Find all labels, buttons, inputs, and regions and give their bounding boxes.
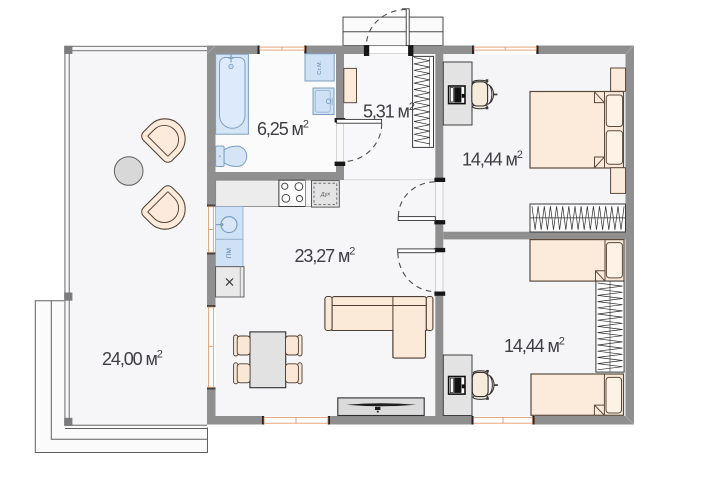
svg-text:23,27 м2: 23,27 м2 (295, 246, 356, 267)
svg-text:14,44 м2: 14,44 м2 (462, 149, 523, 170)
svg-text:6,25 м2: 6,25 м2 (257, 119, 309, 140)
svg-text:5,31 м2: 5,31 м2 (363, 101, 415, 122)
svg-text:14,44 м2: 14,44 м2 (504, 336, 565, 357)
svg-text:Дух: Дух (320, 191, 331, 198)
svg-text:Ст.М.: Ст.М. (317, 60, 323, 74)
svg-text:ПМ: ПМ (226, 248, 233, 259)
svg-text:24,00 м2: 24,00 м2 (102, 349, 163, 370)
